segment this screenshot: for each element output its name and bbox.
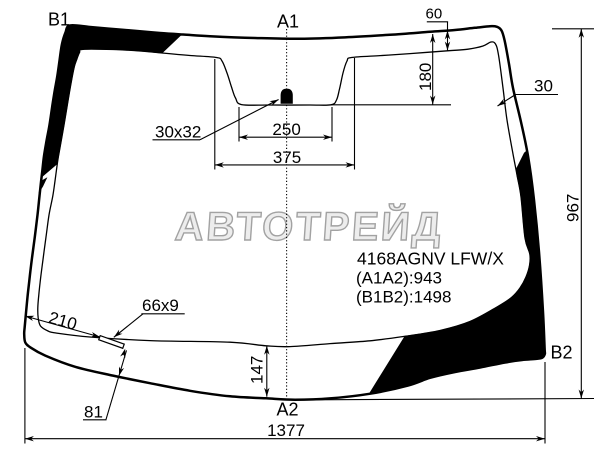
- svg-text:A2: A2: [277, 400, 299, 420]
- svg-text:30: 30: [534, 77, 553, 96]
- svg-text:81: 81: [84, 403, 103, 422]
- svg-text:1377: 1377: [267, 421, 305, 440]
- svg-text:(B1B2):1498: (B1B2):1498: [356, 288, 451, 307]
- svg-text:180: 180: [416, 63, 435, 91]
- svg-text:B2: B2: [551, 343, 573, 363]
- svg-text:210: 210: [47, 308, 79, 334]
- svg-text:967: 967: [564, 194, 583, 222]
- svg-text:66x9: 66x9: [142, 296, 179, 315]
- svg-text:250: 250: [272, 120, 300, 139]
- svg-text:АВТОТРЕЙД: АВТОТРЕЙД: [173, 203, 444, 249]
- svg-text:A1: A1: [277, 12, 299, 32]
- svg-text:B1: B1: [48, 10, 70, 30]
- svg-text:(A1A2):943: (A1A2):943: [356, 269, 442, 288]
- svg-text:30x32: 30x32: [155, 123, 201, 142]
- svg-text:4168AGNV LFW/X: 4168AGNV LFW/X: [357, 249, 504, 269]
- svg-text:375: 375: [273, 148, 301, 167]
- svg-text:60: 60: [426, 6, 443, 23]
- svg-text:147: 147: [248, 356, 267, 384]
